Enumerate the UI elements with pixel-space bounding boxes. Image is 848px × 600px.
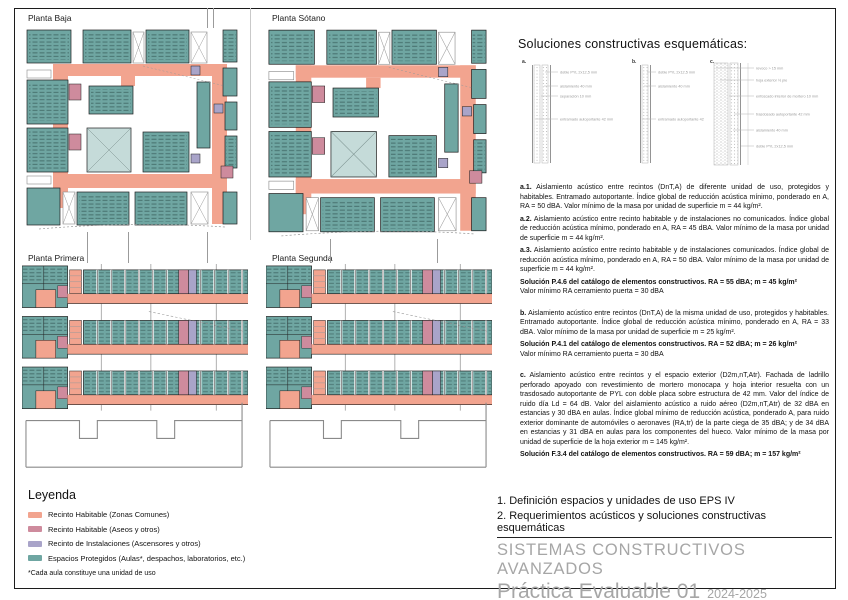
detail-label: aislamiento 40 mm <box>658 85 690 89</box>
plan-label-sotano: Planta Sótano <box>272 13 325 23</box>
legend-item-label: Recinto Habitable (Aseos y otros) <box>48 525 160 534</box>
legend-item-label: Recinto de Instalaciones (Ascensores y o… <box>48 539 201 548</box>
reference-line <box>87 232 88 263</box>
course-title: SISTEMAS CONSTRUCTIVOS AVANZADOS <box>497 541 832 579</box>
legend-item: Recinto Habitable (Zonas Comunes) <box>28 510 245 519</box>
detail-b-diagram: b. doble PYL 2x12,5 mm aislamiento 40 mm… <box>630 57 704 171</box>
assignment-title: Práctica Evaluable 01 <box>497 580 700 600</box>
detail-label: trasdosado autoportante 42 mm <box>756 113 810 117</box>
reference-line <box>128 232 129 263</box>
planta-sotano-plan <box>266 26 490 238</box>
legend-item: Espacios Protegidos (Aulas*, despachos, … <box>28 554 245 563</box>
solution-a-note: Valor mínimo RA cerramiento puerta = 30 … <box>520 287 829 297</box>
reference-line <box>213 8 214 28</box>
drawing-sheet: Planta Baja Planta Sótano Planta Primera… <box>0 0 848 600</box>
planta-segunda-plan <box>266 263 492 478</box>
legend-footnote: *Cada aula constituye una unidad de uso <box>28 570 245 577</box>
titleblock-rule <box>497 537 832 538</box>
legend-swatch-protegidos <box>28 555 42 561</box>
legend-item-label: Recinto Habitable (Zonas Comunes) <box>48 510 169 519</box>
detail-label: aislamiento 40 mm <box>560 85 592 89</box>
detail-label: separación 10 mm <box>560 95 591 99</box>
planta-baja-plan <box>25 26 240 231</box>
plan-label-segunda: Planta Segunda <box>272 253 333 263</box>
legend: Leyenda Recinto Habitable (Zonas Comunes… <box>28 488 245 584</box>
para-a2: a.2. Aislamiento acústico entre recinto … <box>520 215 829 244</box>
solution-a: Solución P.4.6 del catálogo de elementos… <box>520 278 829 288</box>
detail-label: doble PYL 2x12,5 mm <box>756 145 793 149</box>
detail-label: entramado autoportante 42 mm <box>560 118 613 122</box>
detail-label: aislamiento 40 mm <box>756 129 788 133</box>
legend-swatch-habitable-aseos <box>28 526 42 532</box>
legend-swatch-habitable-common <box>28 512 42 518</box>
detail-a-letter: a. <box>522 59 527 65</box>
legend-item: Recinto de Instalaciones (Ascensores y o… <box>28 539 245 548</box>
reference-line <box>207 232 208 263</box>
reference-line <box>330 239 331 263</box>
detail-label: entramado autoportante 42 mm <box>658 118 704 122</box>
title-block: 1. Definición espacios y unidades de uso… <box>497 495 832 600</box>
detail-label: revoco > 15 mm <box>756 67 783 71</box>
detail-a-diagram: a. doble PYL 2x12,5 mm aislamiento 40 mm… <box>520 57 624 171</box>
solution-c: Solución F.3.4 del catálogo de elementos… <box>520 450 829 460</box>
solution-b: Solución P.4.1 del catálogo de elementos… <box>520 340 829 350</box>
planta-primera-plan <box>22 263 248 478</box>
solutions-text-column: a.1. Aislamiento acústico entre recintos… <box>520 183 829 460</box>
para-a3: a.3. Aislamiento acústico entre recinto … <box>520 246 829 275</box>
detail-label: doble PYL 2x12,5 mm <box>560 71 597 75</box>
plan-label-baja: Planta Baja <box>28 13 71 23</box>
detail-label: doble PYL 2x12,5 mm <box>658 71 695 75</box>
reference-line <box>437 239 438 263</box>
legend-swatch-instalaciones <box>28 541 42 547</box>
para-c: c. Aislamiento acústico entre recintos y… <box>520 371 829 447</box>
legend-item-label: Espacios Protegidos (Aulas*, despachos, … <box>48 554 245 563</box>
legend-item: Recinto Habitable (Aseos y otros) <box>28 525 245 534</box>
year-label: 2024-2025 <box>707 587 767 600</box>
solution-b-note: Valor mínimo RA cerramiento puerta = 30 … <box>520 350 829 360</box>
titleblock-line1: 1. Definición espacios y unidades de uso… <box>497 495 832 507</box>
para-a1: a.1. Aislamiento acústico entre recintos… <box>520 183 829 212</box>
reference-line <box>250 8 251 240</box>
para-b: b. Aislamiento acústico entre recintos (… <box>520 309 829 338</box>
titleblock-line2: 2. Requerimientos acústicos y soluciones… <box>497 510 832 534</box>
detail-c-diagram: c. revoco > 15 mm hoja exterior ½ pie en… <box>708 57 834 171</box>
legend-title: Leyenda <box>28 488 245 502</box>
detail-label: enfoscado interior de mortero 10 mm <box>756 95 818 99</box>
reference-line <box>207 8 208 28</box>
detail-label: hoja exterior ½ pie <box>756 79 787 83</box>
solutions-heading: Soluciones constructivas esquemáticas: <box>518 37 747 51</box>
detail-b-letter: b. <box>632 59 637 65</box>
plan-label-primera: Planta Primera <box>28 253 84 263</box>
